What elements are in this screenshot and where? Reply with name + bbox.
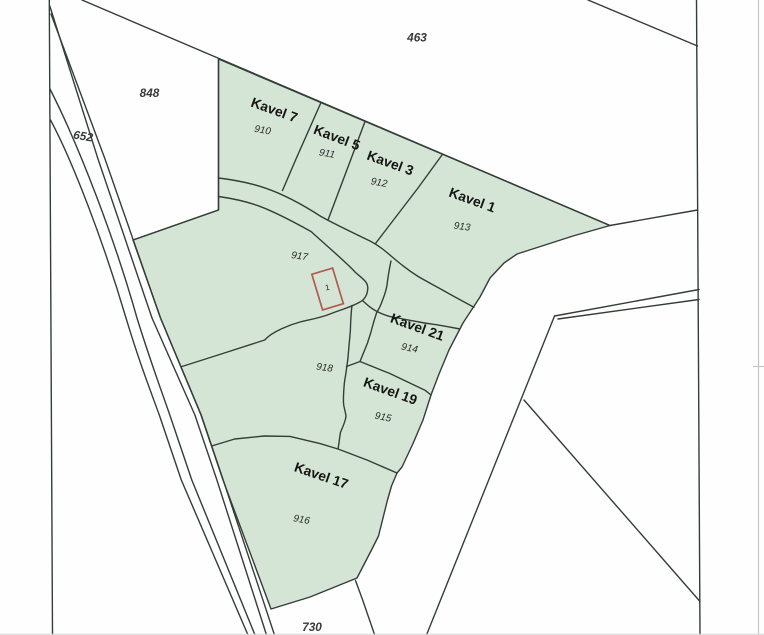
- svg-text:463: 463: [406, 31, 427, 45]
- svg-text:730: 730: [302, 620, 322, 634]
- svg-text:652: 652: [72, 128, 94, 145]
- svg-text:848: 848: [140, 86, 160, 100]
